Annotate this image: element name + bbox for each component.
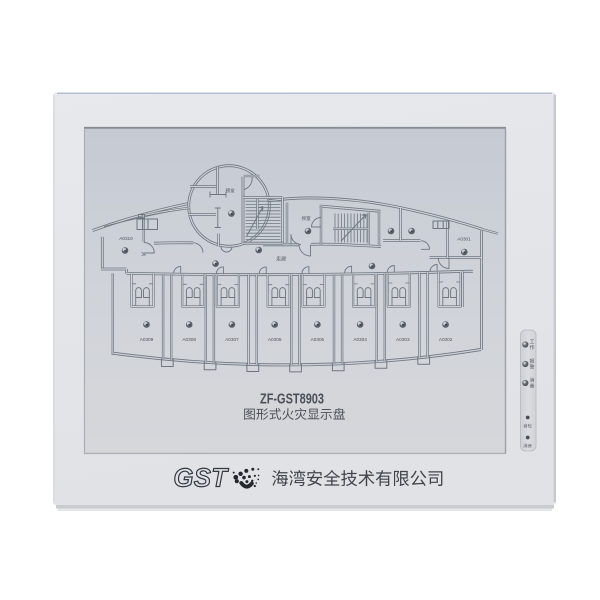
svg-text:A0304: A0304 xyxy=(353,337,367,342)
svg-text:A0310: A0310 xyxy=(119,236,133,241)
svg-text:A0305: A0305 xyxy=(311,337,325,342)
svg-text:A0306: A0306 xyxy=(268,337,282,342)
svg-text:A0303: A0303 xyxy=(396,337,410,342)
svg-text:ZF-GST8903: ZF-GST8903 xyxy=(260,391,324,407)
svg-text:A0301: A0301 xyxy=(457,237,471,242)
svg-text:A0308: A0308 xyxy=(182,337,196,342)
svg-text:A0302: A0302 xyxy=(439,337,453,342)
svg-text:GST: GST xyxy=(174,465,230,493)
svg-text:A0307: A0307 xyxy=(225,337,239,342)
svg-text:A0309: A0309 xyxy=(140,337,154,342)
